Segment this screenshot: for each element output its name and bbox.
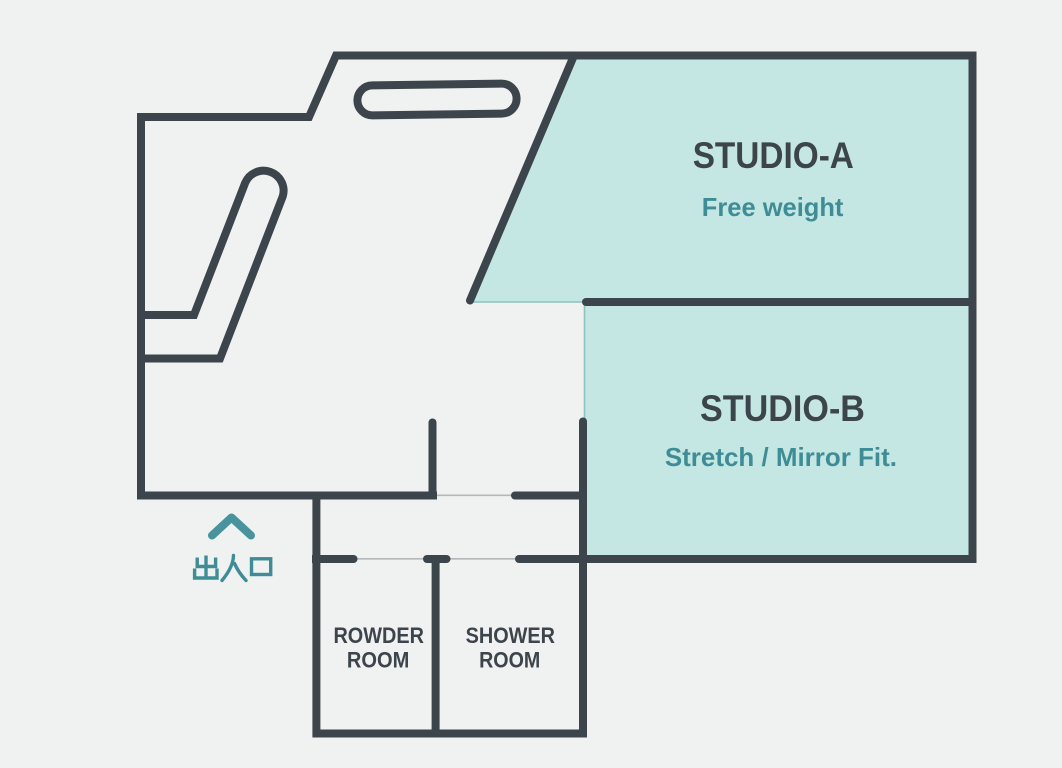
svg-text:ROWDER: ROWDER: [333, 623, 424, 648]
svg-text:ROOM: ROOM: [479, 648, 540, 673]
svg-text:Free weight: Free weight: [702, 192, 844, 222]
svg-text:SHOWER: SHOWER: [466, 623, 556, 648]
svg-text:STUDIO-A: STUDIO-A: [693, 135, 854, 176]
svg-text:STUDIO-B: STUDIO-B: [700, 388, 865, 429]
svg-text:Stretch / Mirror Fit.: Stretch / Mirror Fit.: [665, 442, 897, 472]
svg-text:ROOM: ROOM: [347, 648, 409, 673]
